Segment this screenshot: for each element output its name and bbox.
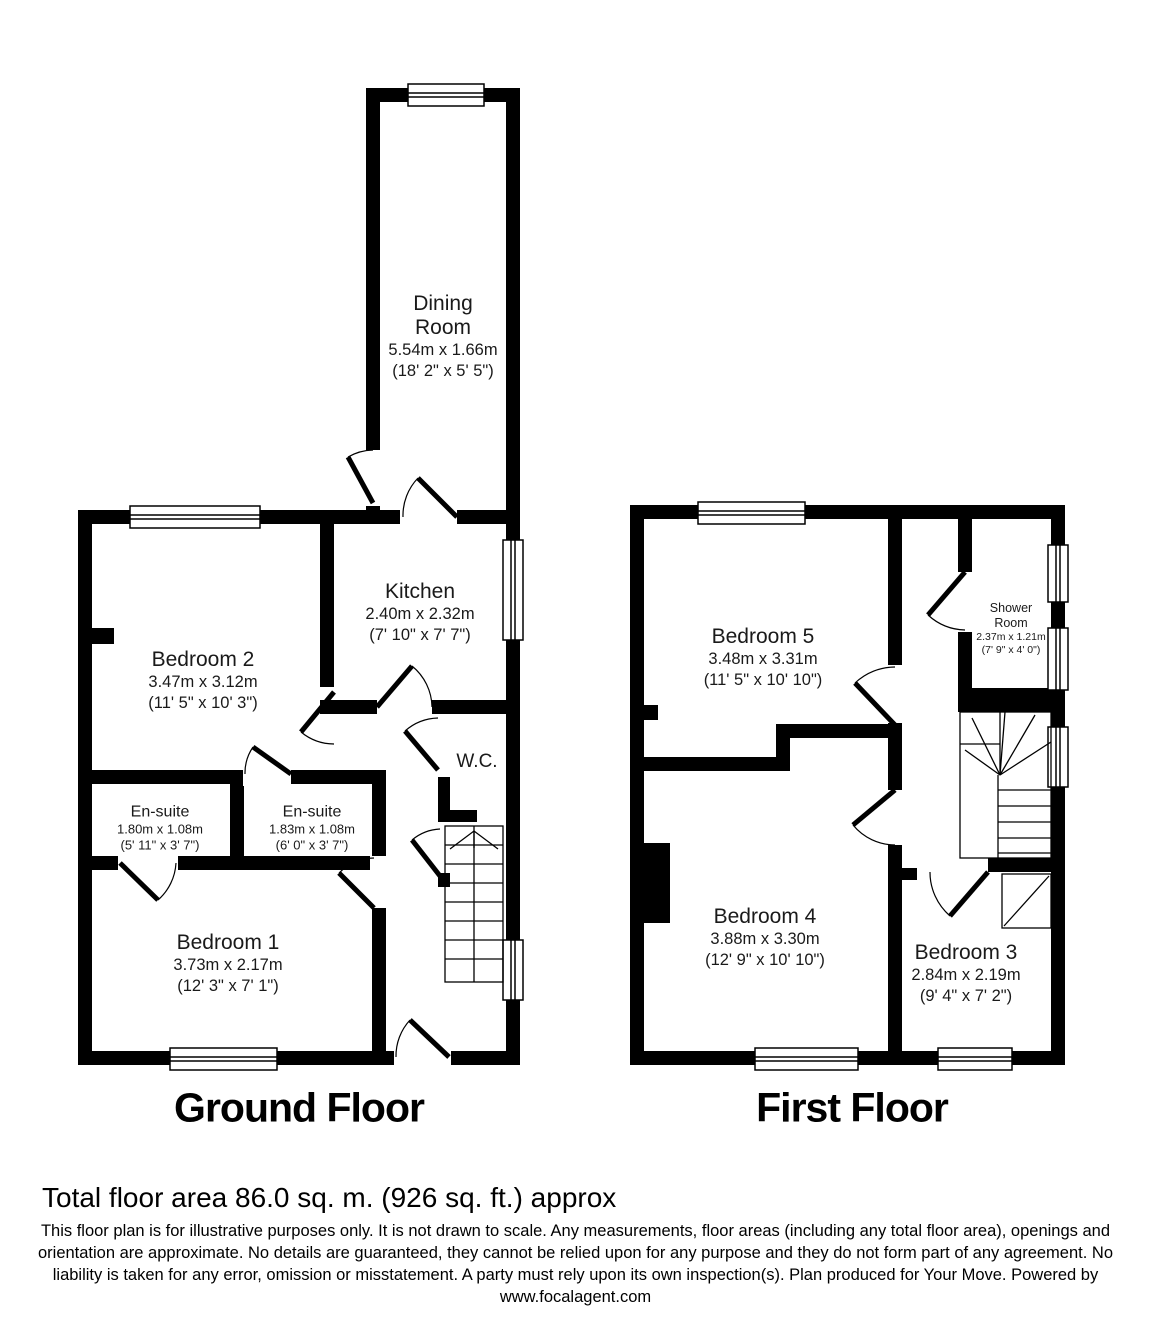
window-icon-bedroom5 xyxy=(698,502,805,524)
window-icon-bedroom1 xyxy=(170,1048,277,1070)
room-dims-metric: 3.47m x 3.12m xyxy=(108,672,298,693)
first-staircase xyxy=(960,712,1051,858)
room-name: Bedroom 4 xyxy=(665,905,865,929)
room-dims-imperial: (11' 5" x 10' 10") xyxy=(663,670,863,691)
room-label-ensuite-1: En-suite 1.80m x 1.08m (5' 11" x 3' 7") xyxy=(95,803,225,854)
room-name: Kitchen xyxy=(330,580,510,604)
total-floor-area: Total floor area 86.0 sq. m. (926 sq. ft… xyxy=(42,1182,616,1214)
room-label-ensuite-2: En-suite 1.83m x 1.08m (6' 0" x 3' 7") xyxy=(247,803,377,854)
first-floor-title: First Floor xyxy=(756,1085,948,1132)
room-dims-imperial: (18' 2" x 5' 5") xyxy=(387,361,499,382)
room-label-bedroom-2: Bedroom 2 3.47m x 3.12m (11' 5" x 10' 3"… xyxy=(108,648,298,714)
room-dims-imperial: (7' 10" x 7' 7") xyxy=(330,625,510,646)
window-icons xyxy=(130,84,1068,1070)
ground-floor-walls xyxy=(78,88,520,1065)
room-dims-metric: 1.83m x 1.08m xyxy=(247,822,377,838)
room-dims-imperial: (6' 0" x 3' 7") xyxy=(247,838,377,854)
room-dims-metric: 3.73m x 2.17m xyxy=(133,955,323,976)
room-dims-metric: 2.84m x 2.19m xyxy=(866,965,1066,986)
room-dims-metric: 2.37m x 1.21m xyxy=(975,631,1047,644)
understairs-cupboard xyxy=(1002,874,1051,928)
room-name: En-suite xyxy=(247,803,377,822)
room-name: Bedroom 1 xyxy=(133,931,323,955)
room-dims-imperial: (12' 9" x 10' 10") xyxy=(665,950,865,971)
window-icon-bedroom4 xyxy=(755,1048,858,1070)
room-label-kitchen: Kitchen 2.40m x 2.32m (7' 10" x 7' 7") xyxy=(330,580,510,646)
door-icon-wc xyxy=(405,718,438,770)
window-icon-shower-upper xyxy=(1048,545,1068,602)
room-dims-metric: 1.80m x 1.08m xyxy=(95,822,225,838)
window-icon-dining xyxy=(408,84,484,106)
room-dims-imperial: (11' 5" x 10' 3") xyxy=(108,693,298,714)
door-icon-bedroom2-hall xyxy=(301,692,334,744)
room-dims-imperial: (5' 11" x 3' 7") xyxy=(95,838,225,854)
room-dims-imperial: (7' 9" x 4' 0") xyxy=(975,644,1047,657)
window-icon-ground-stairs xyxy=(503,940,523,1000)
room-label-wc: W.C. xyxy=(442,750,512,774)
door-icon-bedroom3 xyxy=(930,872,988,916)
room-name: Bedroom 2 xyxy=(108,648,298,672)
room-label-bedroom-3: Bedroom 3 2.84m x 2.19m (9' 4" x 7' 2") xyxy=(866,941,1066,1007)
room-label-bedroom-1: Bedroom 1 3.73m x 2.17m (12' 3" x 7' 1") xyxy=(133,931,323,997)
room-name: Bedroom 3 xyxy=(866,941,1066,965)
room-dims-metric: 2.40m x 2.32m xyxy=(330,604,510,625)
room-label-shower-room: Shower Room 2.37m x 1.21m (7' 9" x 4' 0"… xyxy=(975,601,1047,657)
window-icon-bedroom2 xyxy=(130,506,260,528)
ground-staircase xyxy=(445,826,503,982)
door-icon-stairs-hall xyxy=(412,829,440,876)
room-name: Bedroom 5 xyxy=(663,625,863,649)
window-icon-bedroom3 xyxy=(938,1048,1012,1070)
room-name: Dining Room xyxy=(387,292,499,340)
room-label-bedroom-4: Bedroom 4 3.88m x 3.30m (12' 9" x 10' 10… xyxy=(665,905,865,971)
room-label-bedroom-5: Bedroom 5 3.48m x 3.31m (11' 5" x 10' 10… xyxy=(663,625,863,691)
room-dims-metric: 3.88m x 3.30m xyxy=(665,929,865,950)
room-label-dining-room: Dining Room 5.54m x 1.66m (18' 2" x 5' 5… xyxy=(387,292,499,382)
disclaimer-text: This floor plan is for illustrative purp… xyxy=(37,1220,1115,1308)
room-dims-imperial: (9' 4" x 7' 2") xyxy=(866,986,1066,1007)
room-dims-metric: 5.54m x 1.66m xyxy=(387,340,499,361)
room-name: W.C. xyxy=(442,750,512,774)
window-icon-shower-lower xyxy=(1048,628,1068,690)
room-name: Shower Room xyxy=(975,601,1047,631)
door-icon-bedroom4 xyxy=(853,790,895,845)
floor-plan-page: { "ground_floor": { "title": "Ground Flo… xyxy=(0,0,1151,1328)
door-icon-shower-room xyxy=(928,572,965,630)
room-dims-imperial: (12' 3" x 7' 1") xyxy=(133,976,323,997)
ground-floor-title: Ground Floor xyxy=(174,1085,424,1132)
room-name: En-suite xyxy=(95,803,225,822)
room-dims-metric: 3.48m x 3.31m xyxy=(663,649,863,670)
